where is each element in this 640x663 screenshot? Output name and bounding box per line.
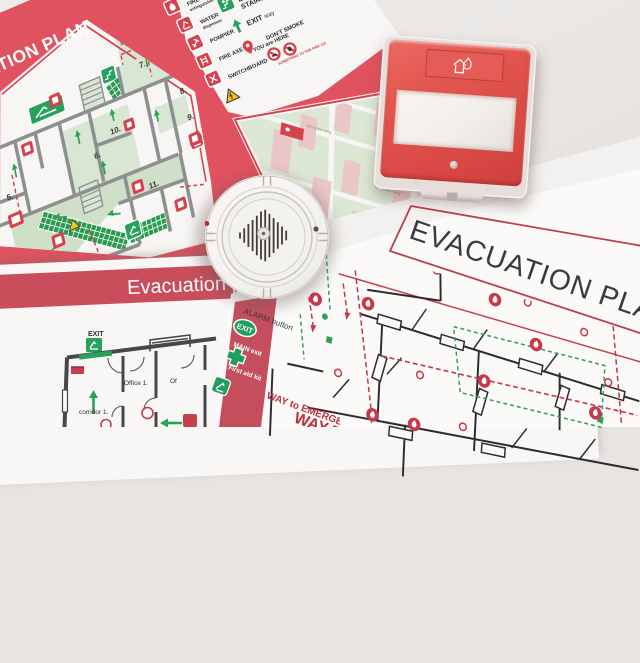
svg-text:SWITCHBOARD: SWITCHBOARD xyxy=(227,58,268,81)
svg-text:5.: 5. xyxy=(6,191,14,202)
svg-text:EXIT: EXIT xyxy=(88,331,104,338)
svg-text:Office 1.: Office 1. xyxy=(124,380,148,387)
svg-text:FIRE AXE: FIRE AXE xyxy=(218,47,244,63)
svg-text:EXIT way: EXIT way xyxy=(245,8,276,28)
svg-text:POMPIER: POMPIER xyxy=(209,29,235,45)
svg-text:corridor 1.: corridor 1. xyxy=(79,409,108,416)
